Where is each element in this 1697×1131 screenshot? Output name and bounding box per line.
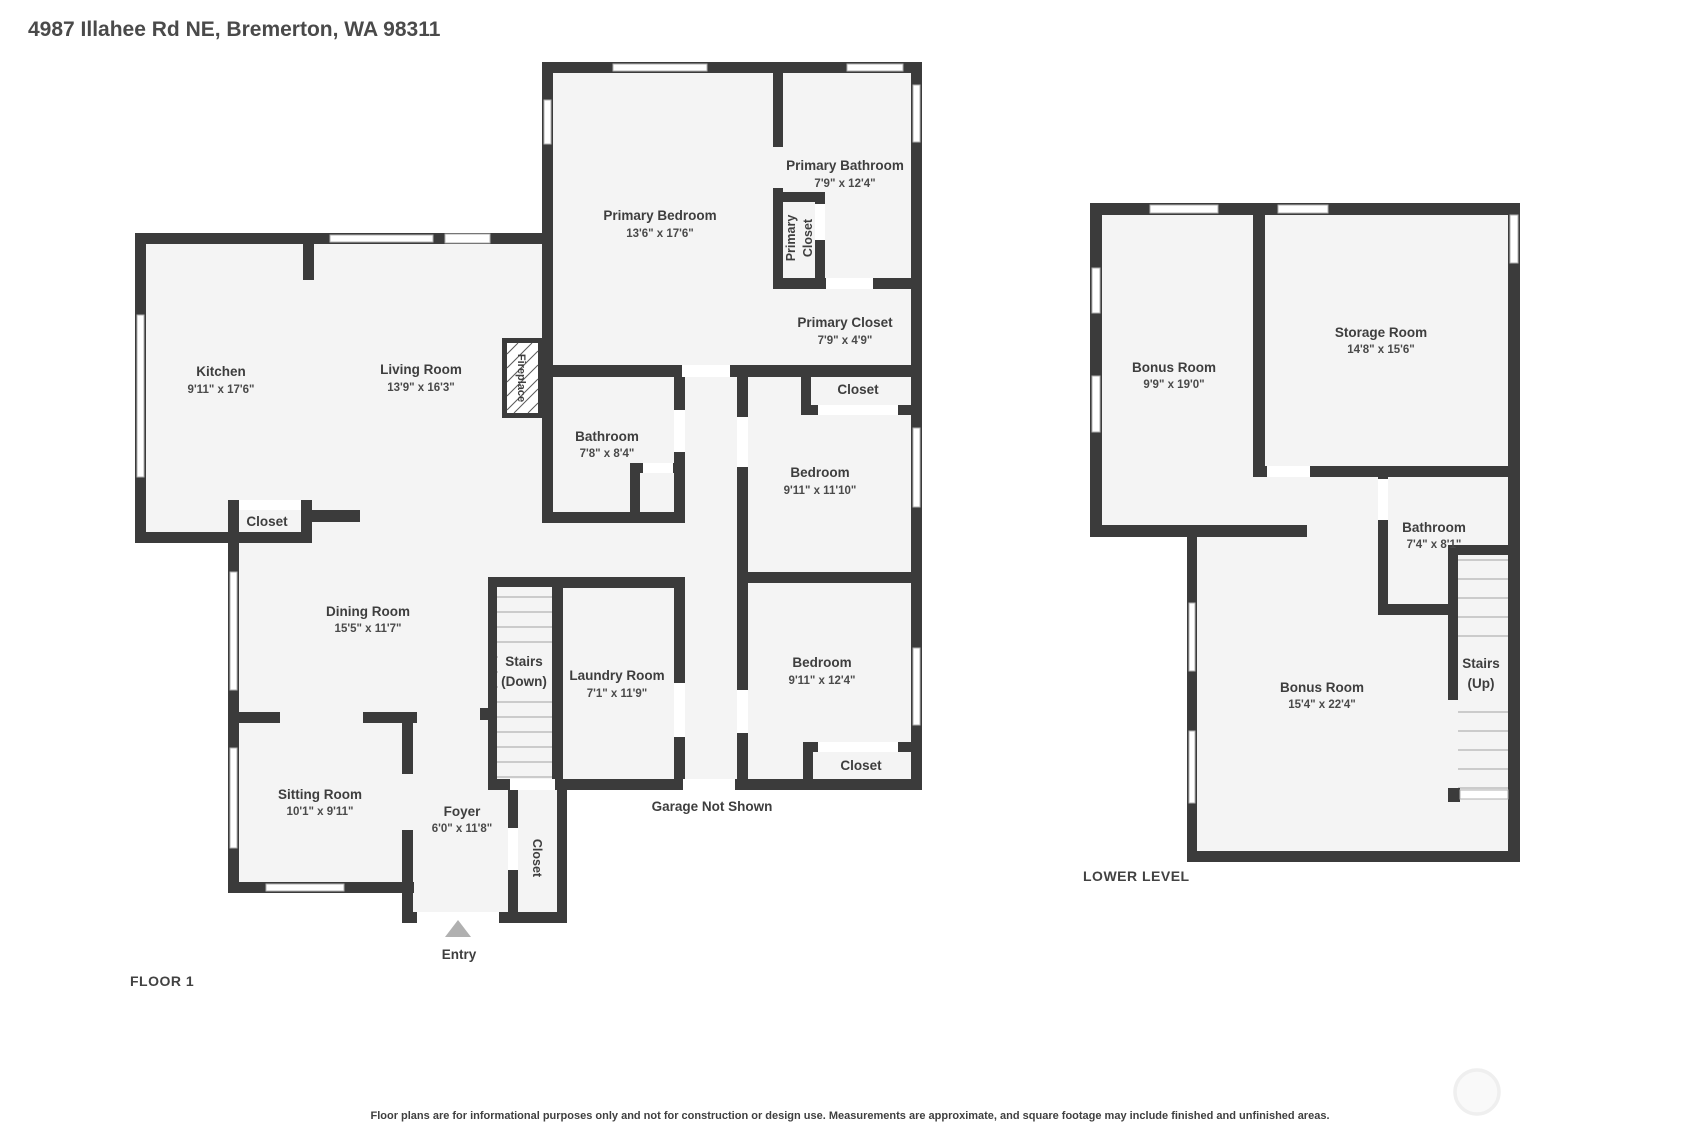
stairs-up-label-1: Stairs <box>1462 656 1500 671</box>
room-label-closet-bed1: Closet <box>837 382 879 397</box>
room-label-dining: Dining Room <box>326 604 410 619</box>
room-dims-laundry: 7'1" x 11'9" <box>587 688 648 700</box>
room-label-bedroom2: Bedroom <box>792 655 851 670</box>
floorplan-drawing: Fireplace Primary Bedroom 13'6" x 17'6" … <box>0 0 1697 1131</box>
room-label-primary-bathroom: Primary Bathroom <box>786 158 904 173</box>
room-dims-bonus1: 9'9" x 19'0" <box>1143 379 1204 391</box>
room-dims-primary-bathroom: 7'9" x 12'4" <box>814 178 875 190</box>
lower-level-title: LOWER LEVEL <box>1083 868 1190 884</box>
floor1-plan: Fireplace Primary Bedroom 13'6" x 17'6" … <box>130 62 922 989</box>
room-dims-bedroom1: 9'11" x 11'10" <box>784 485 857 497</box>
room-dims-lower-bathroom: 7'4" x 8'1" <box>1407 539 1462 551</box>
garage-note: Garage Not Shown <box>652 799 773 814</box>
room-label-lower-bathroom: Bathroom <box>1402 520 1466 535</box>
disclaimer-text: Floor plans are for informational purpos… <box>370 1110 1329 1122</box>
room-label-laundry: Laundry Room <box>569 668 664 683</box>
room-dims-primary-closet: 7'9" x 4'9" <box>818 335 873 347</box>
room-label-bonus1: Bonus Room <box>1132 360 1216 375</box>
lower-level-plan: Bonus Room 9'9" x 19'0" Storage Room 14'… <box>1083 203 1520 884</box>
room-label-primary-closet-small-2: Closet <box>801 218 815 257</box>
entry-label: Entry <box>442 947 477 962</box>
room-dims-bonus2: 15'4" x 22'4" <box>1288 699 1356 711</box>
room-dims-primary-bedroom: 13'6" x 17'6" <box>626 228 694 240</box>
room-label-primary-closet: Primary Closet <box>797 315 893 330</box>
room-label-closet-foyer: Closet <box>530 839 544 878</box>
room-label-bathroom: Bathroom <box>575 429 639 444</box>
watermark-circle-icon <box>1455 1070 1499 1114</box>
room-dims-living: 13'9" x 16'3" <box>387 382 455 394</box>
room-label-sitting: Sitting Room <box>278 787 362 802</box>
room-label-closet-kitchen: Closet <box>246 514 288 529</box>
room-label-kitchen: Kitchen <box>196 364 246 379</box>
floorplan-page: Fireplace Primary Bedroom 13'6" x 17'6" … <box>0 0 1697 1131</box>
room-dims-foyer: 6'0" x 11'8" <box>432 823 493 835</box>
room-label-primary-closet-small-1: Primary <box>784 215 798 262</box>
room-label-bonus2: Bonus Room <box>1280 680 1364 695</box>
room-dims-storage: 14'8" x 15'6" <box>1347 344 1415 356</box>
room-label-living: Living Room <box>380 362 462 377</box>
room-dims-bedroom2: 9'11" x 12'4" <box>789 675 856 687</box>
stairs-down-label-1: Stairs <box>505 654 543 669</box>
room-label-closet-bed2: Closet <box>840 758 882 773</box>
room-label-foyer: Foyer <box>444 804 482 819</box>
room-dims-bathroom: 7'8" x 8'4" <box>580 448 635 460</box>
stairs-up-label-2: (Up) <box>1468 676 1495 691</box>
page-title: 4987 Illahee Rd NE, Bremerton, WA 98311 <box>28 18 441 41</box>
fireplace: Fireplace <box>502 338 543 418</box>
room-dims-kitchen: 9'11" x 17'6" <box>188 384 255 396</box>
fireplace-label: Fireplace <box>515 354 527 402</box>
room-dims-dining: 15'5" x 11'7" <box>335 623 402 635</box>
stairs-down-label-2: (Down) <box>501 674 547 689</box>
room-label-storage: Storage Room <box>1335 325 1427 340</box>
room-dims-sitting: 10'1" x 9'11" <box>287 806 354 818</box>
room-label-primary-bedroom: Primary Bedroom <box>603 208 716 223</box>
room-label-bedroom1: Bedroom <box>790 465 849 480</box>
floor1-title: FLOOR 1 <box>130 973 194 989</box>
